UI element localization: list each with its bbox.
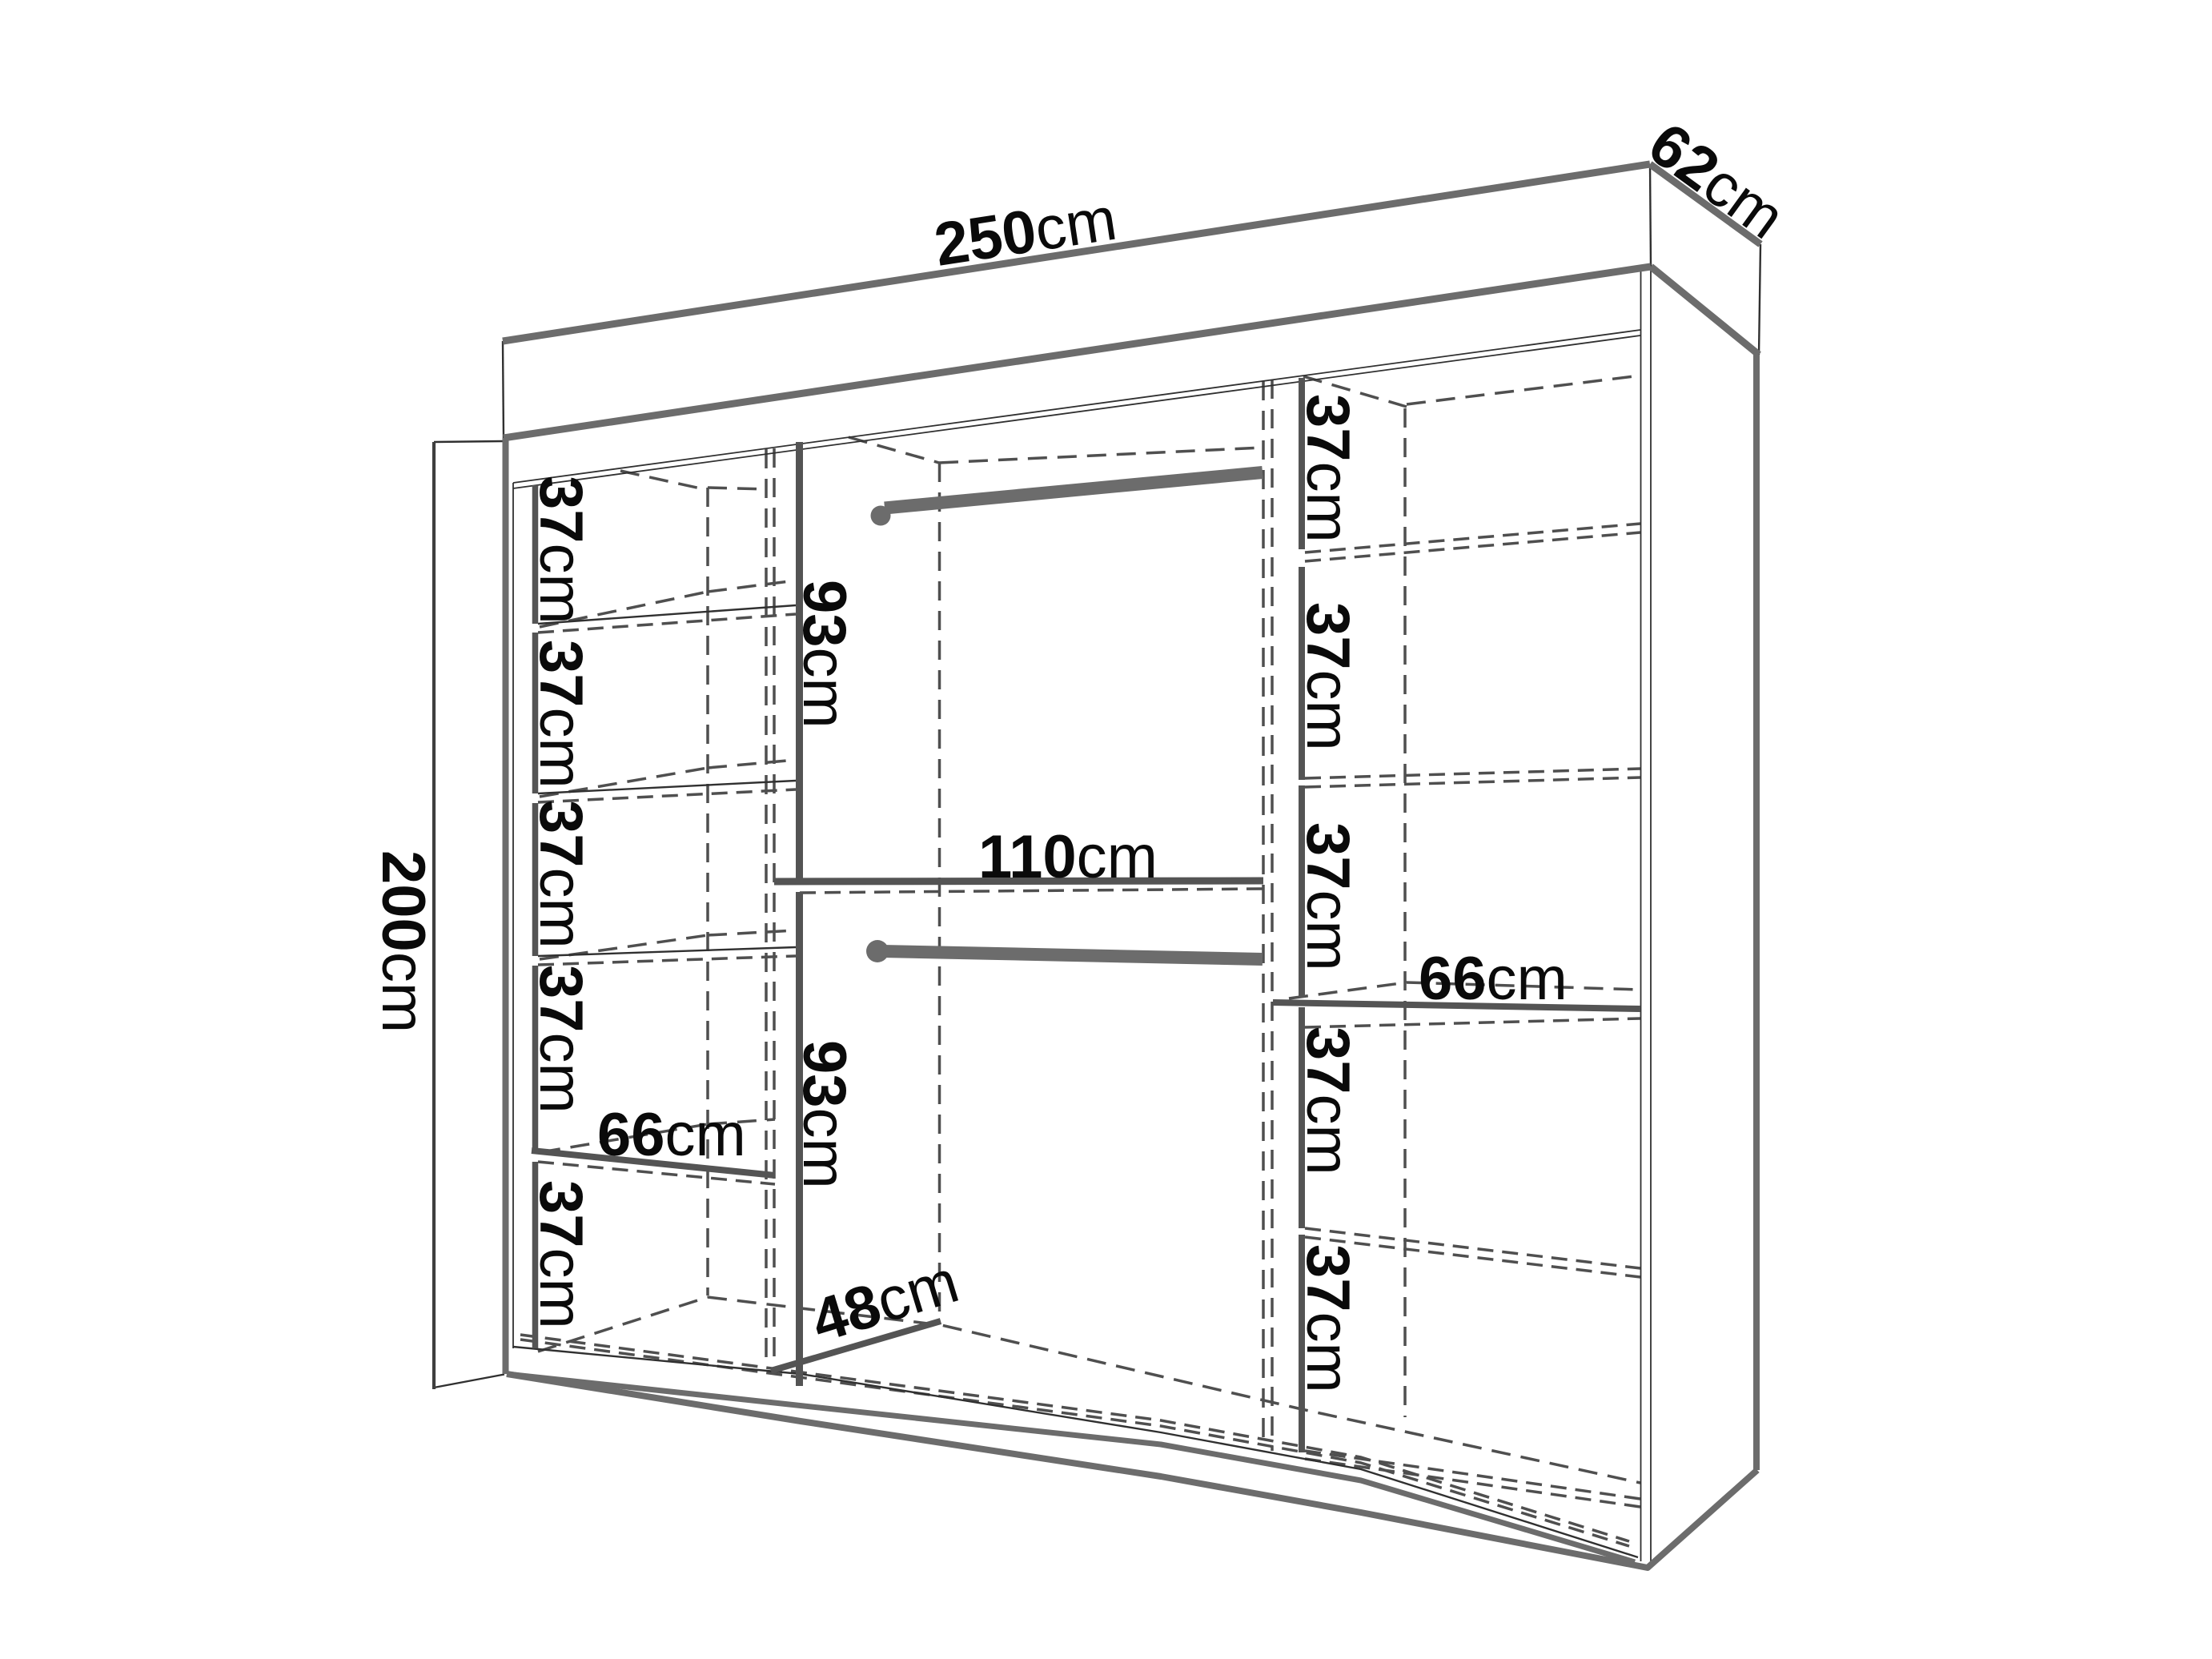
- svg-text:37cm: 37cm: [1294, 602, 1362, 751]
- svg-text:37cm: 37cm: [527, 640, 595, 789]
- svg-text:37cm: 37cm: [1294, 394, 1362, 543]
- svg-text:66cm: 66cm: [1419, 945, 1568, 1013]
- svg-text:93cm: 93cm: [790, 1040, 858, 1189]
- svg-text:37cm: 37cm: [1294, 1026, 1362, 1175]
- svg-text:37cm: 37cm: [527, 476, 595, 625]
- svg-text:37cm: 37cm: [1294, 822, 1362, 971]
- svg-text:37cm: 37cm: [1294, 1244, 1362, 1393]
- svg-text:110cm: 110cm: [978, 823, 1158, 891]
- svg-text:66cm: 66cm: [597, 1101, 746, 1169]
- svg-text:37cm: 37cm: [527, 965, 595, 1114]
- svg-text:37cm: 37cm: [527, 800, 595, 949]
- svg-text:200cm: 200cm: [369, 850, 437, 1033]
- svg-text:93cm: 93cm: [790, 580, 858, 729]
- svg-text:37cm: 37cm: [527, 1180, 595, 1329]
